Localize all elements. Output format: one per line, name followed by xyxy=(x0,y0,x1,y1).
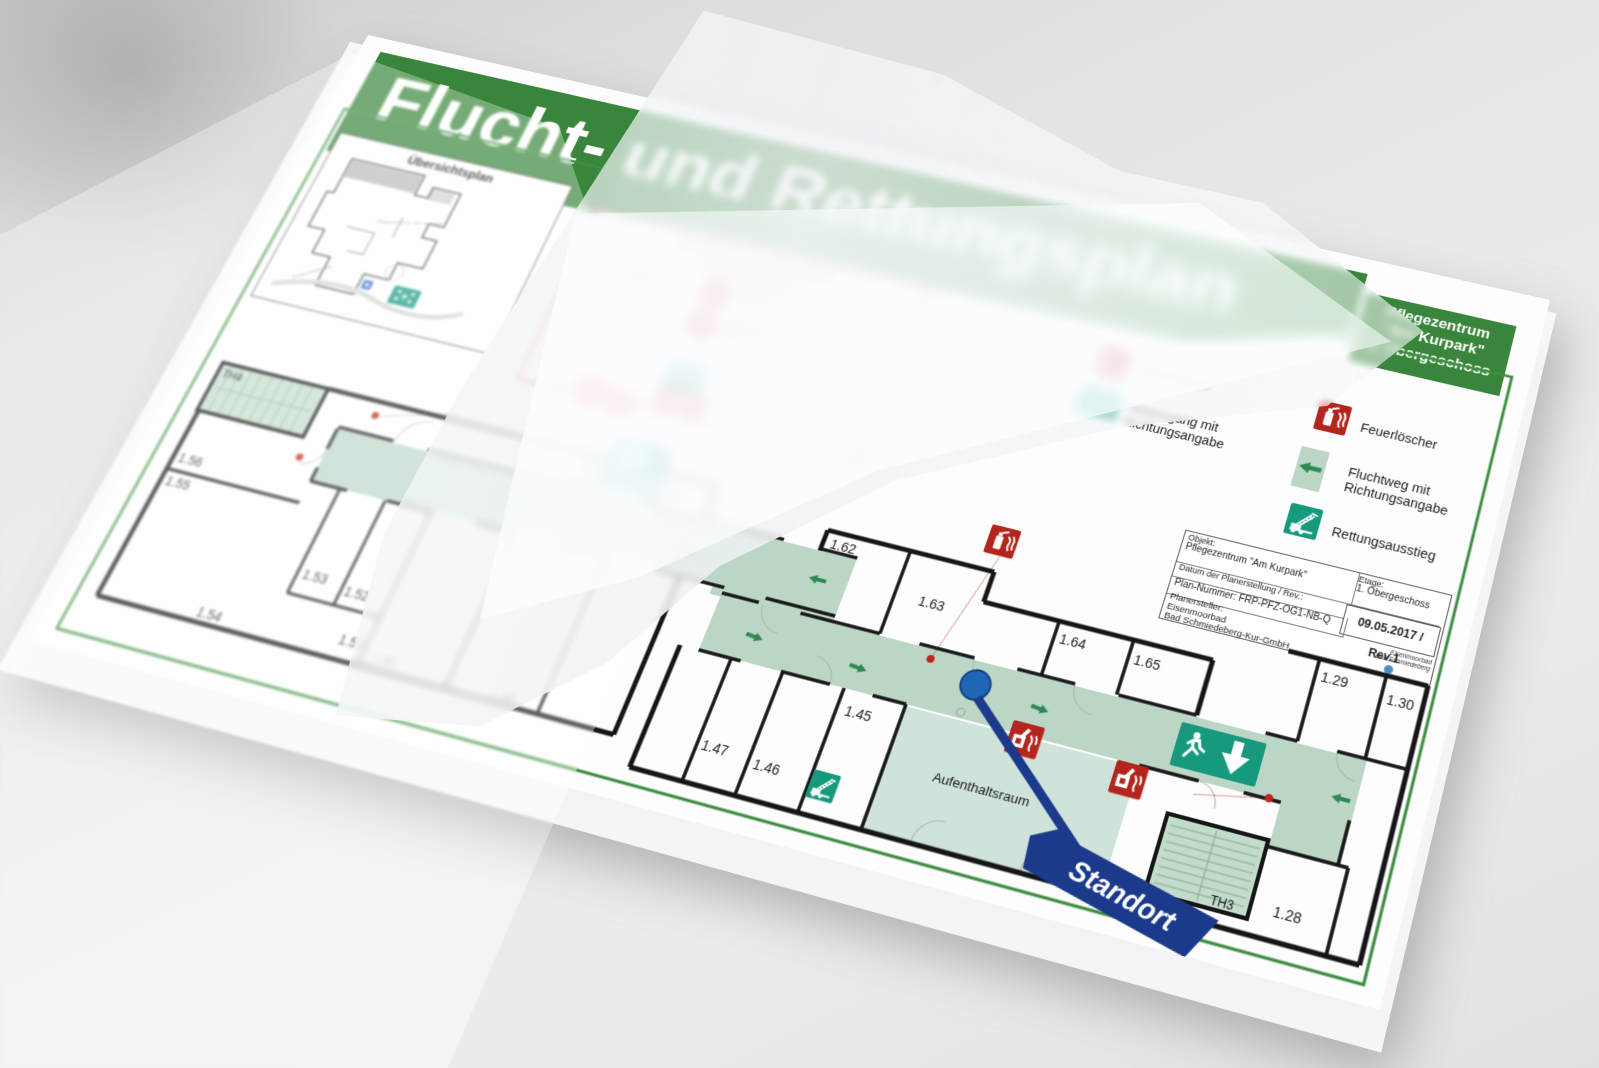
svg-text:1.45: 1.45 xyxy=(842,704,873,725)
svg-text:1.29: 1.29 xyxy=(1319,670,1350,691)
fire-extinguisher-icon xyxy=(983,524,1022,559)
manual-call-point-icon xyxy=(601,387,640,420)
svg-text:1.28: 1.28 xyxy=(1271,905,1303,928)
svg-text:1.64: 1.64 xyxy=(1057,632,1088,653)
svg-text:1.55: 1.55 xyxy=(162,475,192,494)
svg-text:1.53: 1.53 xyxy=(299,568,330,588)
svg-text:1.56: 1.56 xyxy=(175,452,205,471)
svg-text:1.65: 1.65 xyxy=(1131,653,1162,674)
fire-extinguisher-icon xyxy=(572,375,611,407)
svg-text:1.46: 1.46 xyxy=(750,757,782,779)
svg-text:1.47: 1.47 xyxy=(699,738,731,760)
svg-text:1.30: 1.30 xyxy=(1385,693,1416,714)
svg-text:1.52: 1.52 xyxy=(341,585,372,605)
svg-text:1.63: 1.63 xyxy=(916,595,946,615)
svg-text:1.51: 1.51 xyxy=(335,633,366,653)
photo-escape-rescue-plan: Flucht- und Rettungsplan Pflegezentrum "… xyxy=(0,0,1599,1068)
